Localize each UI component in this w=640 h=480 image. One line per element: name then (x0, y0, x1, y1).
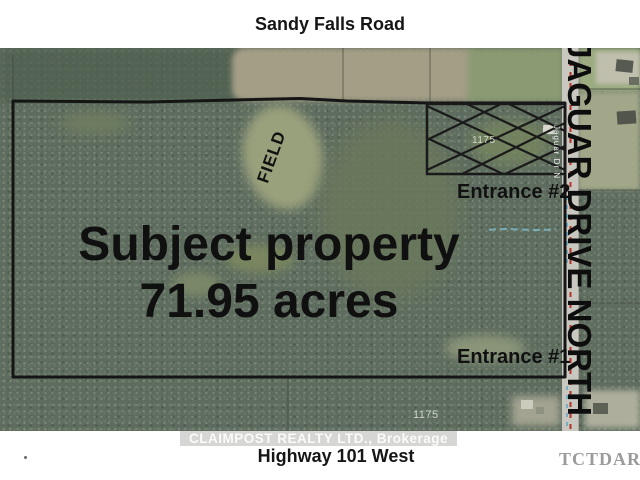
building (629, 77, 639, 85)
property-title-line1: Subject property (60, 216, 478, 273)
building (521, 400, 533, 409)
brokerage-watermark-text: CLAIMPOST REALTY LTD., Brokerage (189, 431, 448, 446)
property-acreage: 71.95 acres (60, 273, 478, 330)
building (617, 110, 637, 124)
stray-dot (24, 456, 27, 459)
entrance-1-label: Entrance #1 (457, 346, 570, 369)
entrance-2-label: Entrance #2 (457, 181, 570, 204)
top-road-banner: Sandy Falls Road (0, 0, 640, 48)
jaguar-dr-map-label: Jaguar Dr N (552, 125, 561, 179)
building (615, 59, 633, 73)
field-patch (232, 48, 477, 101)
clearing-patch (60, 112, 130, 134)
jaguar-drive-north-label: JAGUAR DRIVE NORTH (560, 40, 598, 416)
field-patch (233, 98, 333, 217)
property-title: Subject property 71.95 acres (60, 216, 478, 330)
highway-101-west-label: Highway 101 West (16, 446, 640, 467)
sandy-falls-road-label: Sandy Falls Road (0, 14, 640, 35)
building (536, 407, 544, 414)
listing-image: { "top_banner": { "road_label": "Sandy F… (0, 0, 640, 480)
lot-number: 1175 (472, 135, 496, 146)
forest-patch (0, 48, 245, 102)
lot-number: 1175 (413, 409, 439, 421)
brokerage-watermark: CLAIMPOST REALTY LTD., Brokerage (180, 431, 457, 446)
field-patch (468, 48, 564, 102)
tctdar-watermark: TCTDAR (559, 449, 640, 470)
